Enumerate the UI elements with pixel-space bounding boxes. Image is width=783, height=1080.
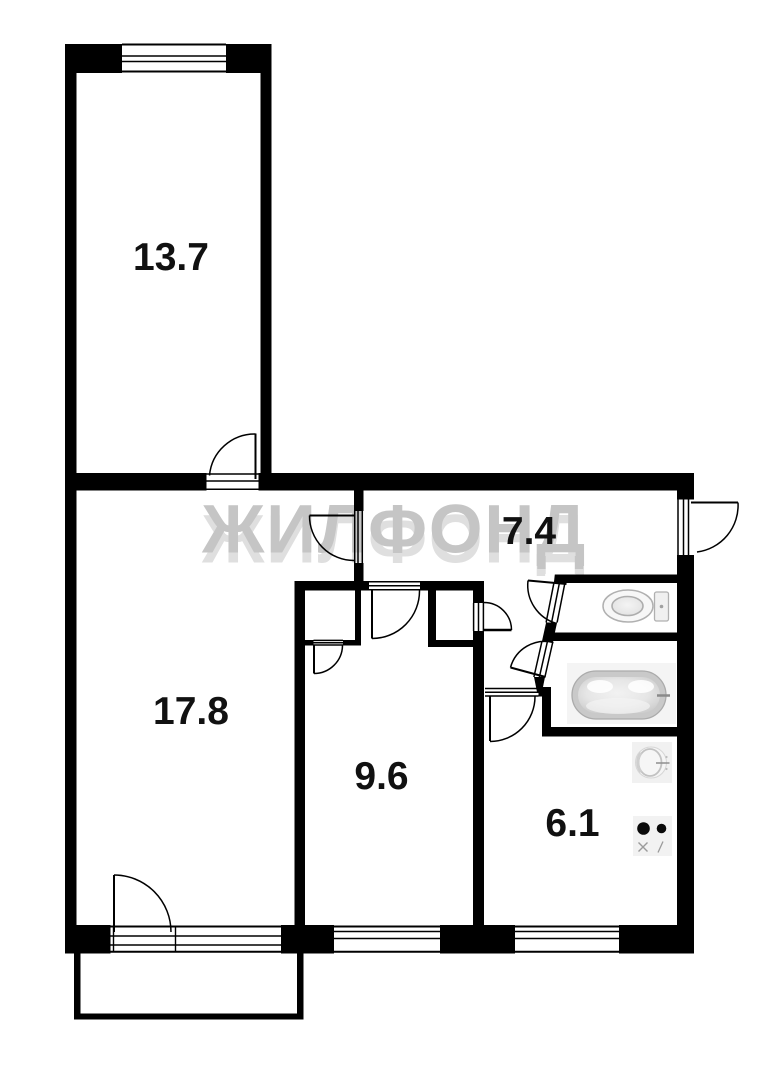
svg-text:6.1: 6.1 [545,802,599,845]
svg-text:7.4: 7.4 [502,510,557,553]
svg-text:9.6: 9.6 [354,755,408,798]
svg-text:13.7: 13.7 [133,236,209,279]
svg-text:17.8: 17.8 [153,690,229,733]
